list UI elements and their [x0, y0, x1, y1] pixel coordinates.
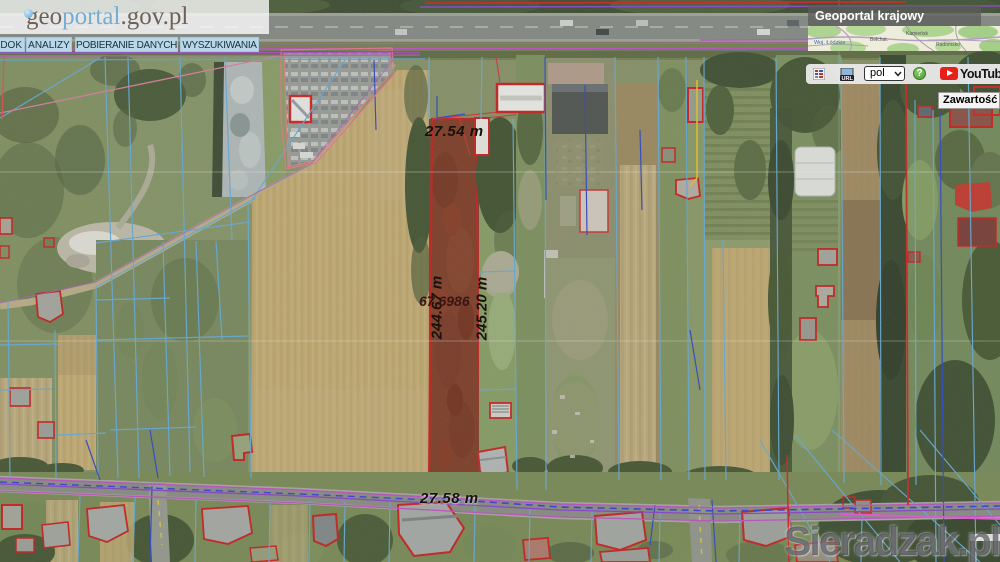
svg-text:Bełchat.: Bełchat. — [870, 37, 888, 43]
svg-text:URL: URL — [842, 76, 854, 81]
svg-text:Woj. Łódzkie: Woj. Łódzkie — [814, 40, 845, 46]
svg-text:Kamieńsk: Kamieńsk — [906, 31, 928, 37]
svg-text:Radomsko: Radomsko — [936, 42, 960, 48]
